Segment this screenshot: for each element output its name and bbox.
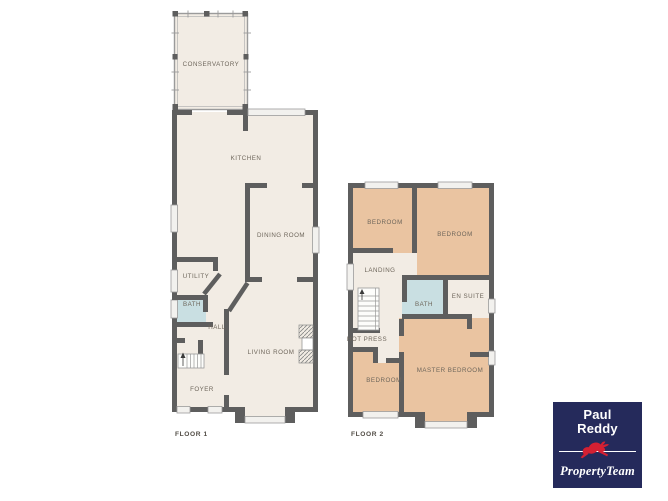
floor1-plan: CONSERVATORY KITCHEN DINING ROOM UTILITY… — [171, 11, 319, 439]
logo-name-line2: Reddy — [577, 422, 618, 436]
floor1-label: FLOOR 1 — [175, 431, 208, 438]
room-label-hot-press: HOT PRESS — [347, 336, 387, 343]
hare-icon — [579, 439, 617, 461]
room-label-bedroom-bottom-left: BEDROOM — [366, 377, 401, 384]
floor2-label: FLOOR 2 — [351, 431, 384, 438]
room-label-bedroom-top-right: BEDROOM — [437, 231, 472, 238]
floor2-plan: BEDROOM BEDROOM LANDING BATH EN SUITE HO… — [347, 182, 495, 438]
room-label-master-bedroom: MASTER BEDROOM — [417, 367, 483, 374]
logo-name: Paul Reddy — [577, 408, 618, 435]
room-label-kitchen: KITCHEN — [231, 155, 262, 162]
room-label-bath-f2: BATH — [415, 301, 433, 308]
floor2-stairs-icon — [358, 288, 379, 330]
room-label-living-room: LIVING ROOM — [248, 349, 295, 356]
floorplan-image: CONSERVATORY KITCHEN DINING ROOM UTILITY… — [0, 0, 668, 501]
room-label-landing: LANDING — [364, 267, 395, 274]
room-label-bedroom-top-left: BEDROOM — [367, 219, 402, 226]
room-label-hall: HALL — [208, 324, 226, 331]
agency-logo: Paul Reddy PropertyTeam — [553, 402, 642, 488]
floor1-stairs-icon — [178, 353, 204, 369]
room-label-en-suite: EN SUITE — [452, 293, 485, 300]
room-label-utility: UTILITY — [183, 273, 210, 280]
room-label-conservatory: CONSERVATORY — [183, 61, 240, 68]
room-label-dining-room: DINING ROOM — [257, 232, 305, 239]
room-label-foyer: FOYER — [190, 386, 214, 393]
room-label-bath-f1: BATH — [183, 301, 201, 308]
logo-tagline: PropertyTeam — [560, 464, 635, 479]
logo-name-line1: Paul — [577, 408, 618, 422]
